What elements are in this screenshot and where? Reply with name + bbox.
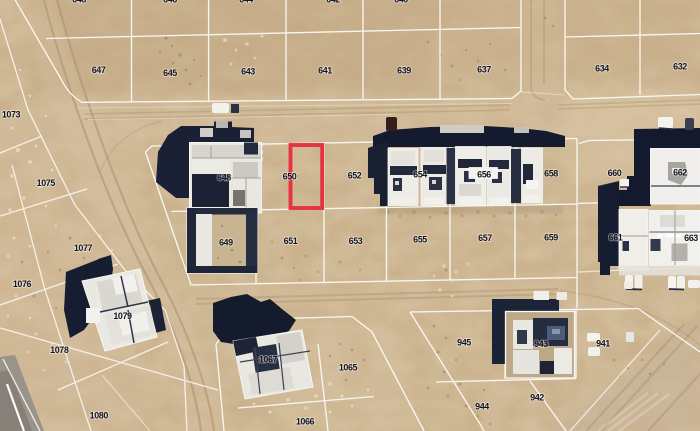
svg-text:640: 640	[394, 0, 408, 5]
svg-text:942: 942	[530, 393, 544, 403]
svg-text:1080: 1080	[90, 411, 109, 421]
svg-text:945: 945	[457, 338, 471, 348]
svg-text:645: 645	[163, 68, 177, 78]
svg-text:641: 641	[318, 66, 332, 76]
svg-text:632: 632	[673, 62, 687, 72]
svg-text:1075: 1075	[37, 178, 56, 188]
svg-text:660: 660	[608, 168, 622, 178]
svg-text:649: 649	[219, 238, 233, 248]
svg-text:647: 647	[92, 65, 106, 75]
svg-text:634: 634	[595, 64, 609, 74]
svg-text:637: 637	[477, 65, 491, 75]
svg-text:646: 646	[163, 0, 177, 5]
svg-text:1067: 1067	[259, 354, 278, 364]
svg-text:1073: 1073	[2, 110, 21, 120]
svg-text:1076: 1076	[13, 279, 32, 289]
svg-text:650: 650	[283, 172, 297, 182]
svg-text:652: 652	[348, 170, 362, 180]
svg-text:656: 656	[477, 170, 491, 180]
svg-text:944: 944	[475, 402, 489, 412]
svg-text:659: 659	[544, 233, 558, 243]
svg-text:648: 648	[72, 0, 86, 5]
svg-text:663: 663	[684, 233, 698, 243]
svg-text:941: 941	[596, 339, 610, 349]
svg-text:648: 648	[217, 173, 231, 183]
svg-text:1066: 1066	[296, 416, 315, 426]
svg-text:662: 662	[673, 167, 687, 177]
svg-text:657: 657	[478, 233, 492, 243]
svg-text:1078: 1078	[50, 345, 69, 355]
svg-text:642: 642	[326, 0, 340, 5]
svg-text:643: 643	[241, 67, 255, 77]
svg-text:654: 654	[413, 170, 427, 180]
svg-text:658: 658	[544, 169, 558, 179]
svg-text:651: 651	[284, 236, 298, 246]
svg-text:653: 653	[349, 236, 363, 246]
svg-text:1077: 1077	[74, 243, 93, 253]
svg-text:943: 943	[534, 339, 548, 349]
svg-text:1065: 1065	[339, 363, 358, 373]
svg-text:644: 644	[239, 0, 253, 5]
svg-text:655: 655	[413, 235, 427, 245]
svg-text:639: 639	[397, 66, 411, 76]
svg-text:661: 661	[609, 233, 623, 243]
svg-text:1079: 1079	[113, 311, 132, 321]
